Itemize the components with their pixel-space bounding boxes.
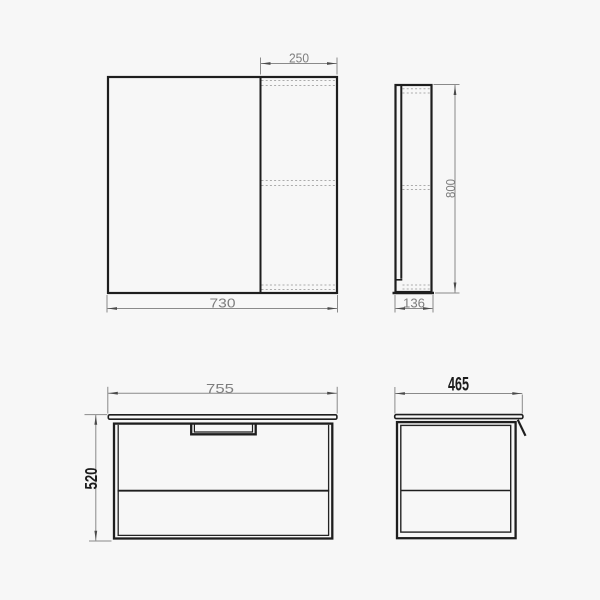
svg-text:465: 465 <box>448 375 469 396</box>
svg-text:136: 136 <box>403 296 425 311</box>
svg-text:730: 730 <box>210 296 236 311</box>
svg-text:250: 250 <box>289 50 309 65</box>
svg-text:755: 755 <box>206 381 234 396</box>
svg-text:520: 520 <box>81 467 101 489</box>
svg-text:800: 800 <box>443 179 458 198</box>
